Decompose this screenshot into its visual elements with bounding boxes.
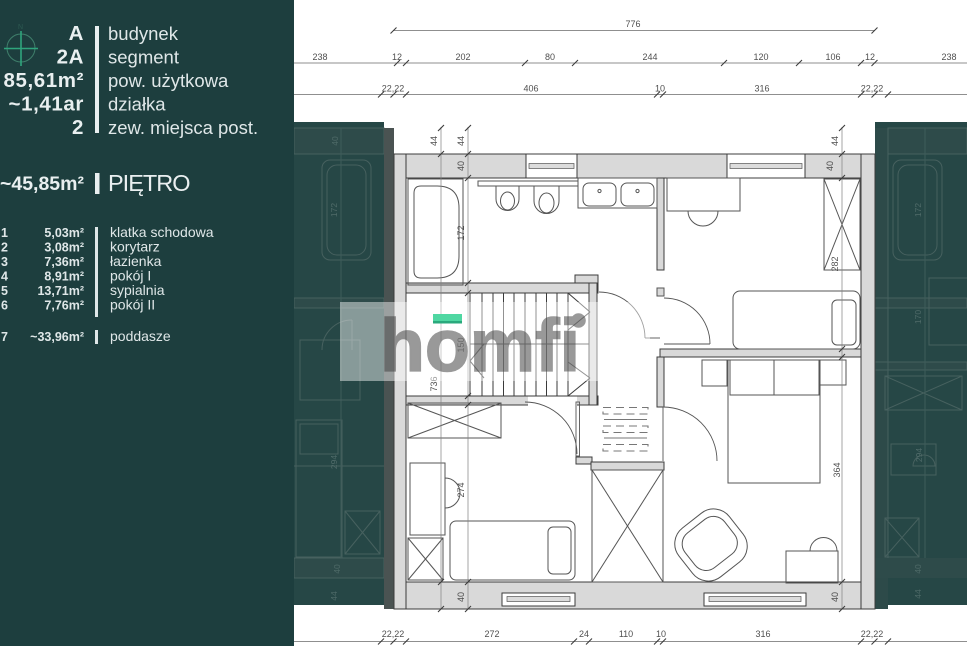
svg-text:12: 12 — [392, 52, 402, 62]
svg-text:5: 5 — [1, 284, 8, 298]
svg-text:segment: segment — [108, 47, 179, 68]
svg-text:274: 274 — [456, 482, 466, 497]
svg-text:406: 406 — [523, 84, 538, 94]
svg-text:40: 40 — [330, 136, 340, 146]
svg-text:40: 40 — [913, 564, 923, 574]
svg-text:N: N — [18, 24, 23, 31]
svg-text:44: 44 — [329, 591, 339, 601]
svg-text:238: 238 — [312, 52, 327, 62]
svg-text:2: 2 — [72, 116, 84, 139]
svg-text:44: 44 — [456, 136, 466, 146]
svg-text:10: 10 — [655, 84, 665, 94]
svg-text:294: 294 — [329, 455, 339, 469]
svg-text:106: 106 — [825, 52, 840, 62]
svg-text:7: 7 — [1, 330, 8, 344]
svg-text:zew. miejsca post.: zew. miejsca post. — [108, 117, 258, 138]
svg-text:22,22: 22,22 — [861, 84, 884, 94]
svg-text:44: 44 — [830, 136, 840, 146]
svg-text:85,61m²: 85,61m² — [3, 69, 84, 92]
svg-text:homfi: homfi — [380, 304, 580, 387]
svg-text:8,91m²: 8,91m² — [44, 270, 84, 284]
svg-text:776: 776 — [625, 19, 640, 29]
svg-text:80: 80 — [545, 52, 555, 62]
svg-text:40: 40 — [456, 161, 466, 171]
svg-text:22,22: 22,22 — [382, 629, 405, 639]
svg-text:5,03m²: 5,03m² — [44, 226, 84, 240]
svg-text:4: 4 — [1, 270, 8, 284]
svg-text:12: 12 — [865, 52, 875, 62]
svg-text:40: 40 — [456, 592, 466, 602]
svg-text:44: 44 — [913, 589, 923, 599]
svg-text:40: 40 — [332, 564, 342, 574]
svg-text:40: 40 — [825, 161, 835, 171]
svg-text:7,36m²: 7,36m² — [44, 255, 84, 269]
svg-text:120: 120 — [753, 52, 768, 62]
svg-text:10: 10 — [656, 629, 666, 639]
svg-text:294: 294 — [914, 448, 924, 462]
svg-text:13,71m²: 13,71m² — [37, 284, 84, 298]
svg-text:A: A — [69, 22, 84, 45]
svg-text:172: 172 — [329, 203, 339, 217]
svg-text:6: 6 — [1, 299, 8, 313]
svg-text:364: 364 — [832, 462, 842, 477]
svg-text:2A: 2A — [57, 46, 84, 69]
svg-text:316: 316 — [755, 629, 770, 639]
svg-text:3: 3 — [1, 255, 8, 269]
svg-text:3,08m²: 3,08m² — [44, 241, 84, 255]
svg-text:272: 272 — [484, 629, 499, 639]
svg-text:2: 2 — [1, 241, 8, 255]
svg-text:282: 282 — [830, 256, 840, 271]
svg-text:22,22: 22,22 — [861, 629, 884, 639]
svg-text:1: 1 — [1, 226, 8, 240]
svg-text:172: 172 — [913, 203, 923, 217]
svg-text:poddasze: poddasze — [110, 328, 171, 344]
svg-text:172: 172 — [456, 225, 466, 240]
svg-text:44: 44 — [429, 136, 439, 146]
svg-text:~33,96m²: ~33,96m² — [30, 330, 84, 344]
svg-text:244: 244 — [642, 52, 657, 62]
svg-text:7,76m²: 7,76m² — [44, 299, 84, 313]
svg-text:budynek: budynek — [108, 23, 179, 44]
svg-text:202: 202 — [455, 52, 470, 62]
svg-text:~1,41ar: ~1,41ar — [9, 93, 84, 116]
svg-text:pokój II: pokój II — [110, 297, 155, 313]
svg-text:238: 238 — [941, 52, 956, 62]
svg-text:22,22: 22,22 — [382, 84, 405, 94]
svg-text:24: 24 — [579, 629, 589, 639]
svg-text:40: 40 — [830, 592, 840, 602]
svg-text:110: 110 — [619, 629, 633, 639]
svg-text:170: 170 — [913, 310, 923, 324]
svg-text:PIĘTRO: PIĘTRO — [108, 170, 190, 196]
svg-text:działka: działka — [108, 94, 166, 115]
svg-text:~45,85m²: ~45,85m² — [0, 173, 84, 195]
svg-text:pow. użytkowa: pow. użytkowa — [108, 70, 229, 91]
svg-text:316: 316 — [754, 84, 769, 94]
